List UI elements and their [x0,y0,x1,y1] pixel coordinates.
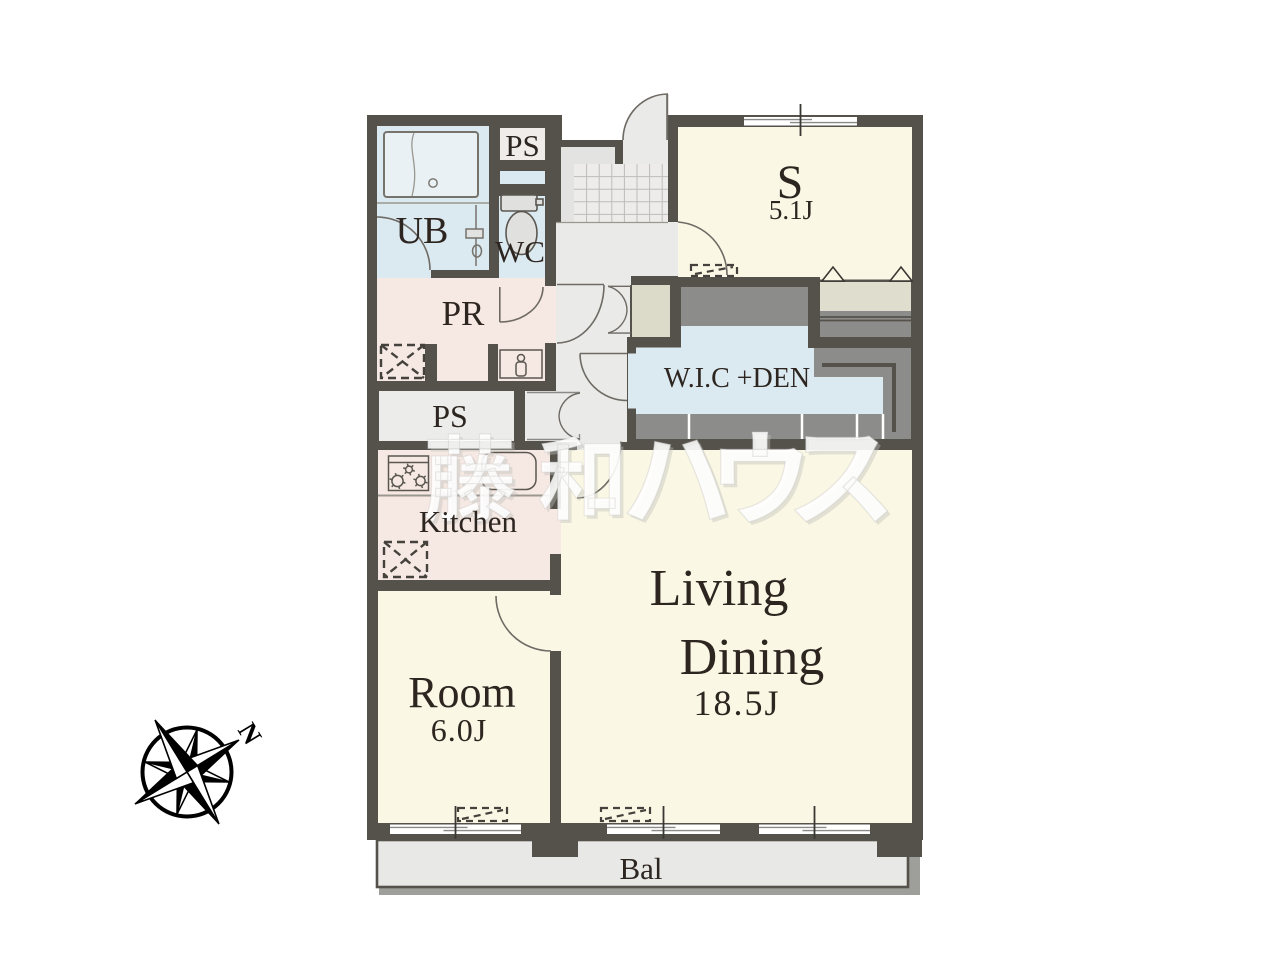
svg-text:N: N [232,717,268,750]
svg-text:Kitchen: Kitchen [419,504,518,539]
svg-text:Bal: Bal [619,851,662,886]
svg-text:W.I.C +DEN: W.I.C +DEN [664,363,810,394]
svg-text:18.5J: 18.5J [693,683,780,723]
svg-text:WC: WC [495,234,545,269]
svg-text:UB: UB [396,210,449,252]
svg-text:Room: Room [408,668,516,717]
svg-text:Dining: Dining [680,629,824,686]
svg-text:PR: PR [442,294,485,333]
svg-text:Living: Living [650,560,789,617]
svg-text:PS: PS [505,128,539,163]
svg-text:PS: PS [432,398,468,434]
svg-text:6.0J: 6.0J [431,712,487,748]
svg-text:5.1J: 5.1J [769,195,813,225]
